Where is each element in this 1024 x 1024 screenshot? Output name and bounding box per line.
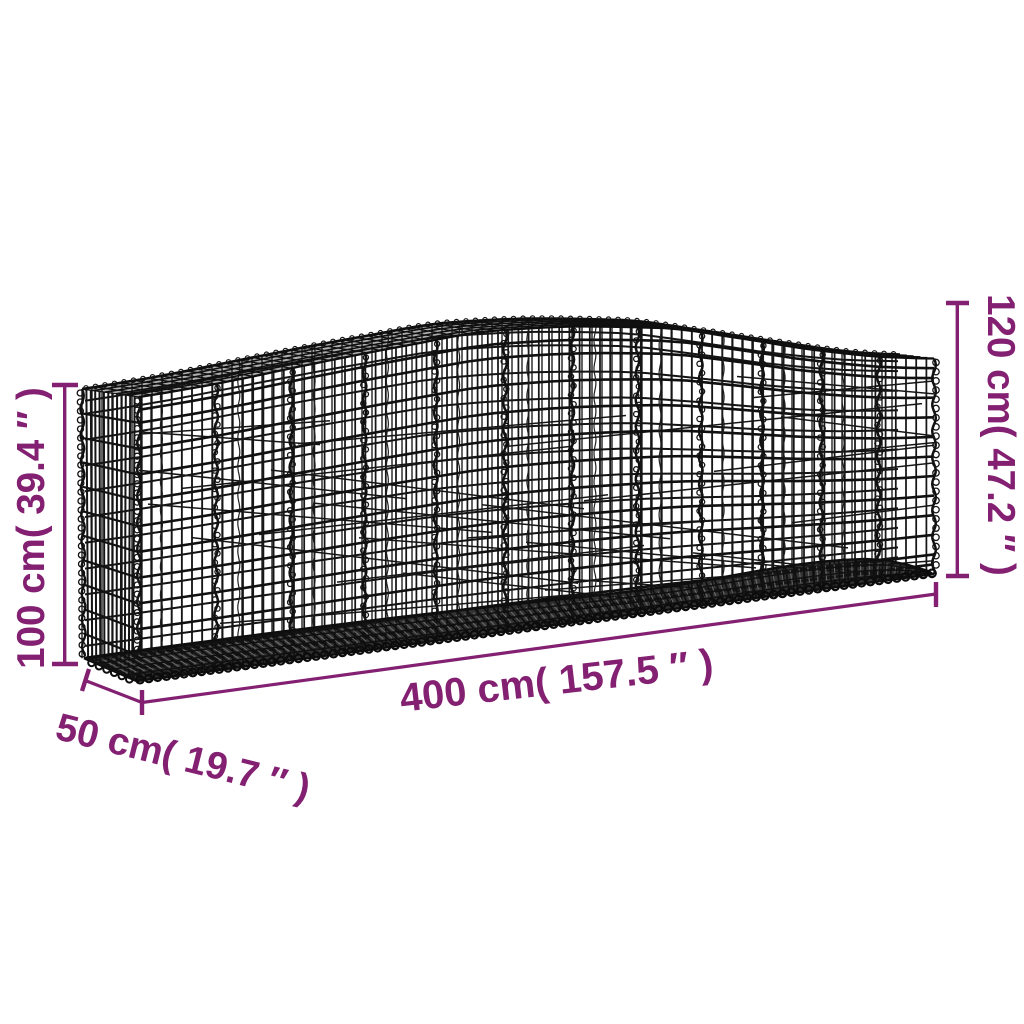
svg-text:100 cm( 39.4 ″ ): 100 cm( 39.4 ″ ) bbox=[10, 387, 53, 669]
svg-text:120 cm( 47.2 ″ ): 120 cm( 47.2 ″ ) bbox=[979, 294, 1022, 576]
